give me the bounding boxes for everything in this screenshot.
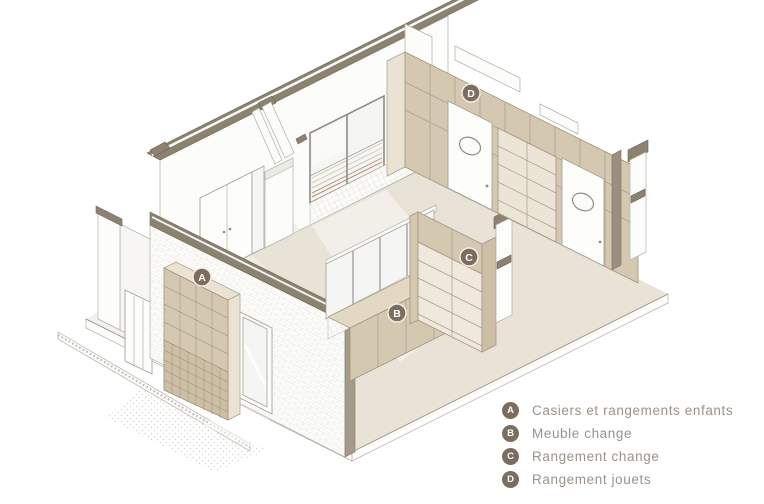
svg-text:D: D (467, 88, 475, 100)
end-post (628, 140, 648, 260)
legend-key-d-icon: D (502, 471, 519, 488)
legend-label-d: Rangement jouets (532, 472, 651, 487)
svg-text:C: C (465, 252, 473, 264)
cabinet-a-side (228, 294, 240, 420)
legend-key-c-icon: C (502, 448, 519, 465)
left-wall (96, 206, 158, 374)
legend-item-a: A Casiers et rangements enfants (502, 402, 733, 419)
marker-b: B (388, 304, 406, 322)
legend-item-c: C Rangement change (502, 448, 733, 465)
wall-d-end-strip (612, 150, 621, 270)
legend-item-d: D Rangement jouets (502, 471, 733, 488)
unit-c-edge (410, 212, 418, 324)
column-post (494, 207, 514, 323)
svg-text:A: A (198, 272, 206, 284)
left-wall-pier (98, 213, 120, 330)
legend-key-a-icon: A (502, 402, 519, 419)
legend: A Casiers et rangements enfants B Meuble… (502, 402, 733, 488)
legend-key-b-icon: B (502, 425, 519, 442)
radiator-panel (125, 290, 152, 374)
legend-item-b: B Meuble change (502, 425, 733, 442)
svg-text:B: B (393, 308, 401, 320)
legend-label-a: Casiers et rangements enfants (532, 403, 733, 418)
wall-d-side (387, 52, 405, 176)
legend-label-b: Meuble change (532, 426, 632, 441)
marker-c: C (460, 248, 478, 266)
marker-a: A (193, 268, 211, 286)
legend-label-c: Rangement change (532, 449, 659, 464)
unit-c-side (482, 237, 496, 352)
marker-d: D (462, 84, 480, 102)
